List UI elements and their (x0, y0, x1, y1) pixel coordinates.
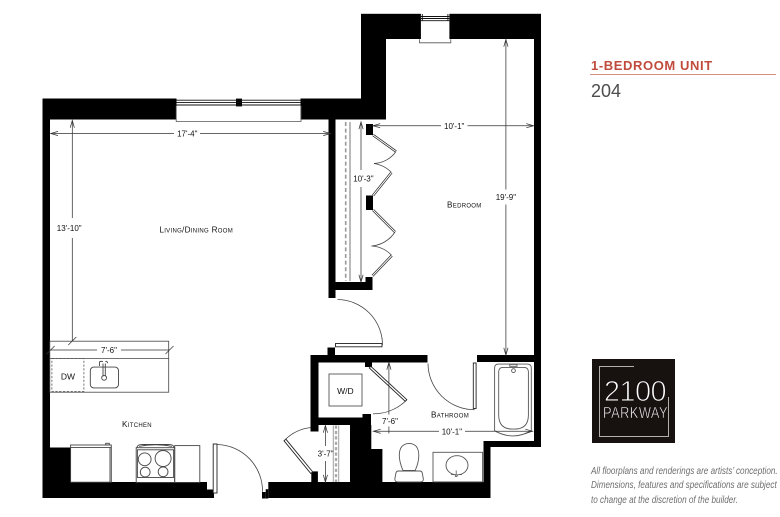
svg-text:7'-6": 7'-6" (101, 346, 117, 355)
svg-text:10'-1": 10'-1" (444, 122, 465, 131)
svg-text:7'-6": 7'-6" (382, 417, 398, 426)
svg-text:Kitchen: Kitchen (122, 420, 152, 429)
svg-text:10'-3": 10'-3" (353, 175, 374, 184)
svg-text:19'-9": 19'-9" (496, 193, 517, 202)
svg-text:17'-4": 17'-4" (177, 130, 198, 139)
svg-text:W/D: W/D (337, 386, 354, 396)
svg-text:13'-10": 13'-10" (57, 224, 82, 233)
svg-text:Living/Dining Room: Living/Dining Room (159, 226, 233, 235)
svg-text:Bathroom: Bathroom (431, 411, 469, 420)
svg-text:Bedroom: Bedroom (447, 201, 482, 210)
svg-text:10'-1": 10'-1" (442, 428, 463, 437)
svg-text:DW: DW (61, 372, 75, 382)
svg-text:3'-7": 3'-7" (318, 450, 334, 459)
